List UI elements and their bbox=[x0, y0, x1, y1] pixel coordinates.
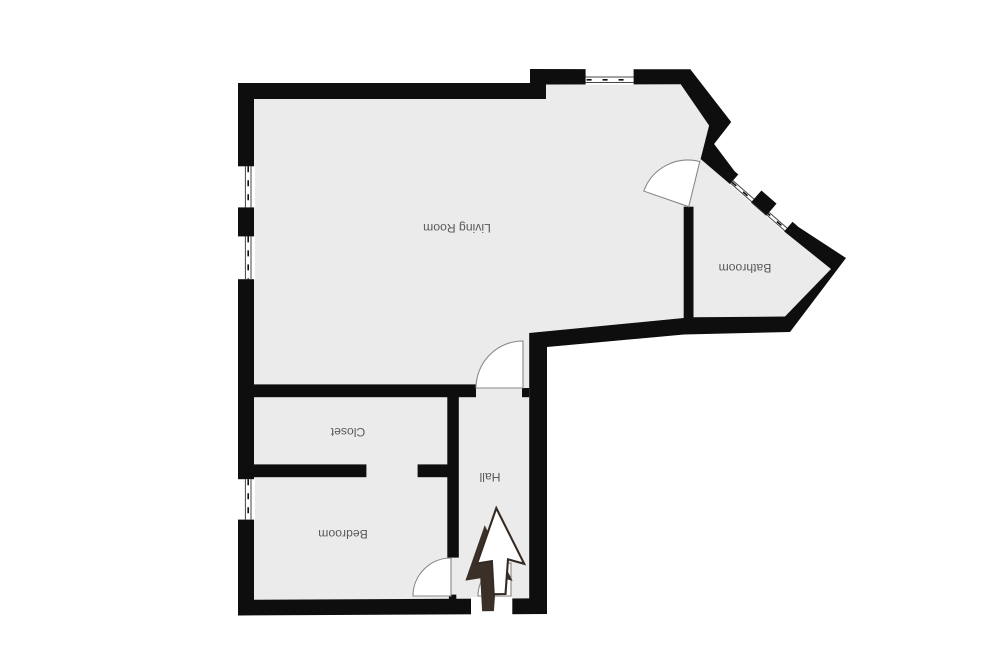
svg-text:Hall: Hall bbox=[480, 470, 501, 484]
svg-text:Closet: Closet bbox=[330, 425, 365, 439]
svg-text:Living Room: Living Room bbox=[423, 221, 491, 235]
svg-text:Bathroom: Bathroom bbox=[719, 261, 772, 275]
svg-text:Bedroom: Bedroom bbox=[318, 527, 367, 541]
